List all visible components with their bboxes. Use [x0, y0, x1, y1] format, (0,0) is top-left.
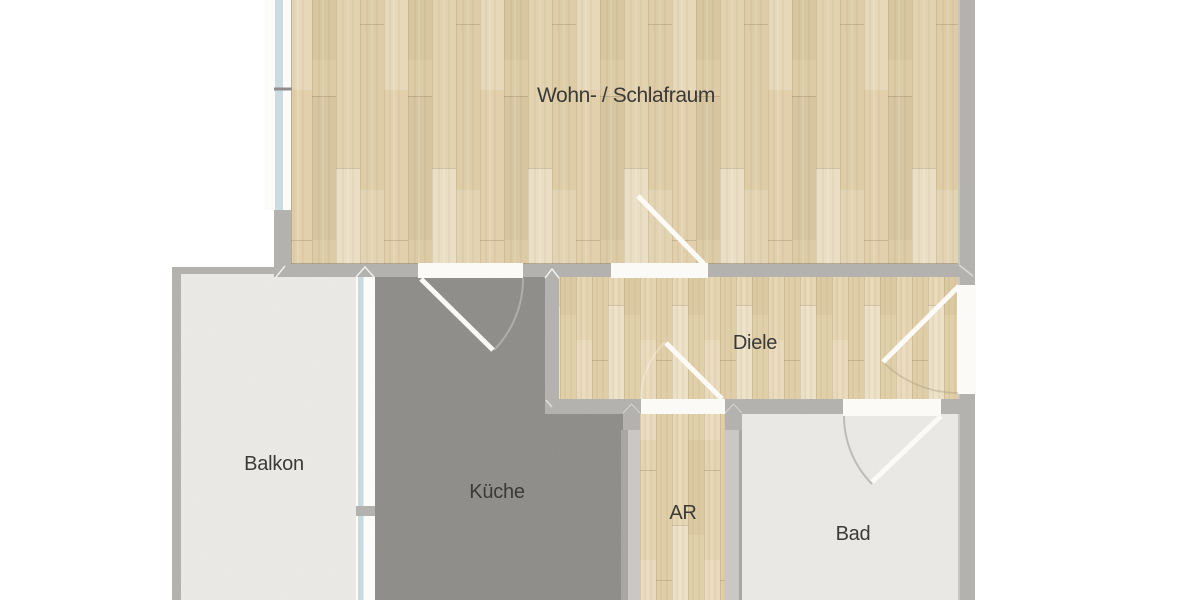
svg-text:Balkon: Balkon — [244, 453, 304, 475]
svg-text:Küche: Küche — [469, 481, 525, 503]
svg-text:Wohn- / Schlafraum: Wohn- / Schlafraum — [537, 84, 715, 107]
svg-text:Bad: Bad — [836, 523, 871, 545]
svg-text:Diele: Diele — [733, 332, 777, 354]
svg-text:AR: AR — [669, 502, 696, 524]
